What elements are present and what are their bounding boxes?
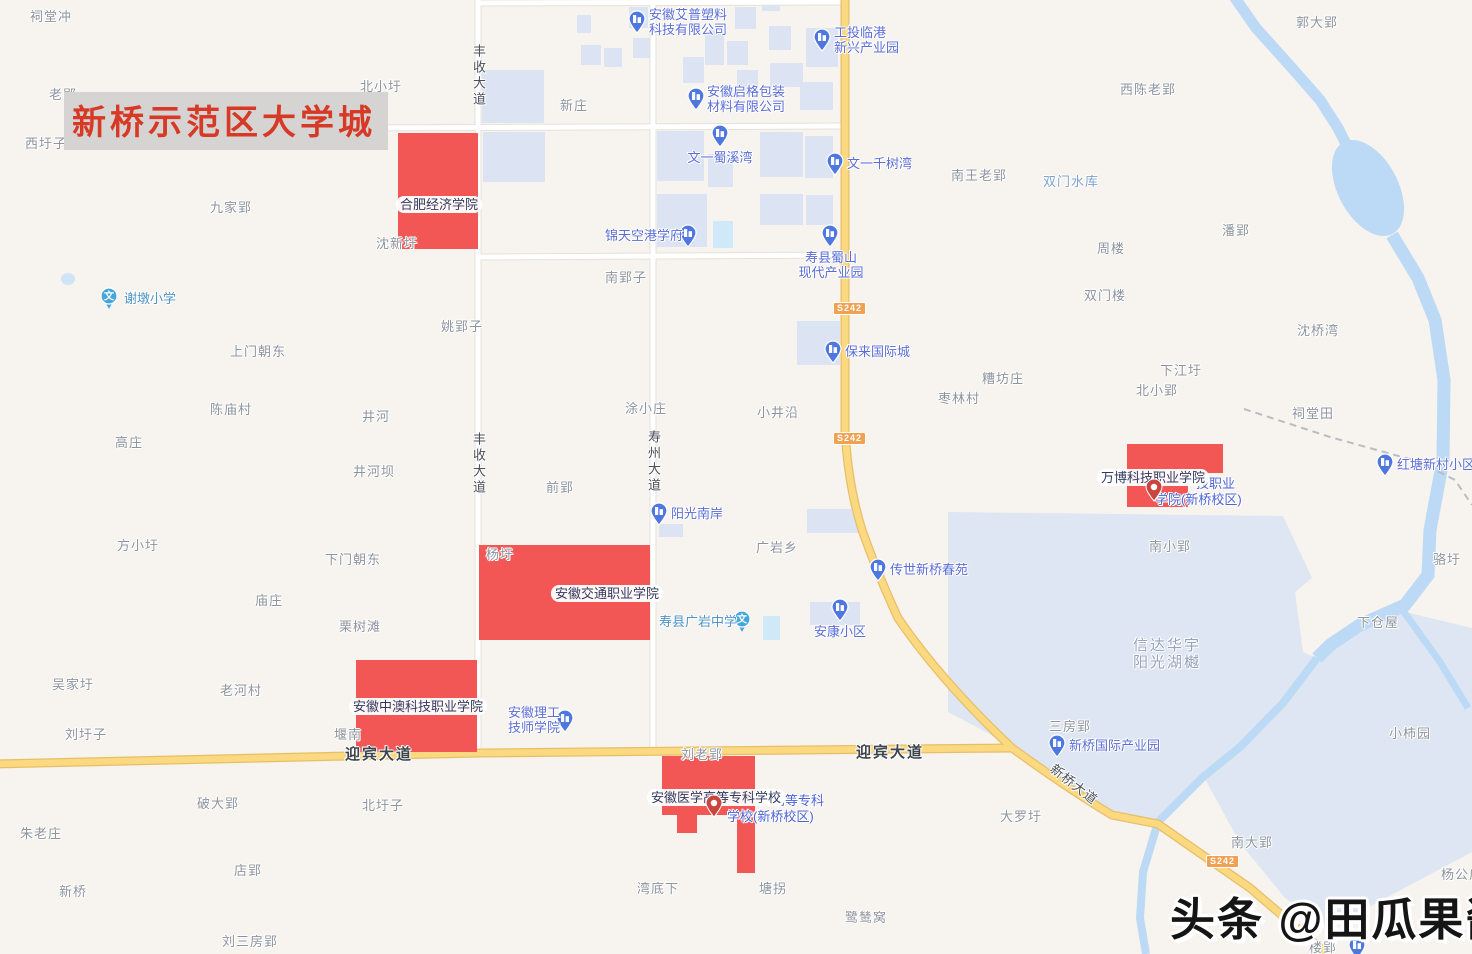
village-label: 新桥: [59, 885, 87, 900]
poi-label[interactable]: 红塘新村小区: [1397, 457, 1472, 472]
village-label: 骆圩: [1433, 553, 1461, 568]
road-label: 寿州大道: [645, 430, 660, 494]
village-label: 堰南: [334, 728, 362, 743]
poi-label[interactable]: 传世新桥春苑: [890, 562, 968, 577]
poi-label[interactable]: 寿县蜀山现代产业园: [798, 250, 863, 280]
village-label: 高庄: [115, 436, 143, 451]
village-label: 西陈老郢: [1120, 83, 1176, 98]
village-label: 井河坝: [353, 465, 395, 480]
village-label: 小柿园: [1389, 727, 1431, 742]
village-label: 庙庄: [255, 594, 283, 609]
road-label: 丰收大道: [470, 44, 485, 108]
village-label: 北小郢: [1136, 384, 1178, 399]
poi-label[interactable]: 文一千树湾: [847, 156, 912, 171]
village-label: 老河村: [220, 684, 262, 699]
village-label: 北圩子: [362, 799, 404, 814]
village-label: 方小圩: [117, 539, 159, 554]
place-pin-icon[interactable]: [1144, 478, 1164, 502]
village-label: 涂小庄: [625, 402, 667, 417]
village-label: 塘拐: [759, 882, 787, 897]
route-badge: S242: [833, 302, 866, 315]
place-pin-icon[interactable]: [704, 794, 724, 818]
village-label: 祠堂田: [1292, 407, 1334, 422]
village-label: 前郢: [546, 481, 574, 496]
poi-label[interactable]: 锦天空港学府: [605, 228, 683, 243]
poi-label[interactable]: 安徽理工技师学院: [508, 705, 560, 735]
village-label: 三房郢: [1049, 720, 1091, 735]
village-label: 吴家圩: [52, 678, 94, 693]
village-label: 下仓屋: [1357, 616, 1399, 631]
village-label: 枣林村: [938, 392, 980, 407]
water-label: 双门水库: [1043, 175, 1099, 190]
village-label: 新庄: [560, 99, 588, 114]
village-label: 栗树滩: [339, 620, 381, 635]
campus-area-label: 安徽中澳科技职业学院: [349, 698, 487, 715]
watermark: 头条 @田瓜果酱: [1170, 883, 1472, 948]
poi-label[interactable]: 工投临港新兴产业园: [834, 25, 899, 55]
road-label: 丰收大道: [470, 432, 485, 496]
building-pin-icon[interactable]: [830, 598, 850, 622]
poi-label[interactable]: 寿县广岩中学: [659, 614, 737, 629]
village-label: 破大郢: [197, 797, 239, 812]
village-label: 上门朝东: [230, 345, 286, 360]
road-label: 迎宾大道: [856, 744, 924, 761]
village-label: 下门朝东: [325, 553, 381, 568]
building-pin-icon[interactable]: [825, 152, 845, 176]
campus-area-label: 合肥经济学院: [396, 196, 482, 213]
route-badge: S242: [1206, 855, 1239, 868]
village-label: 祠堂冲: [30, 10, 72, 25]
village-label: 刘三房郢: [222, 935, 278, 950]
village-label: 姚郢子: [441, 320, 483, 335]
village-label: 下江圩: [1160, 364, 1202, 379]
campus-poi-text: 学校(新桥校区): [727, 810, 814, 825]
road-label: 迎宾大道: [345, 746, 413, 763]
village-label: 沈桥湾: [1297, 324, 1339, 339]
village-label: 杨圩: [486, 548, 514, 563]
village-label: 九家郢: [210, 201, 252, 216]
poi-label[interactable]: 文一蜀溪湾: [687, 150, 752, 165]
village-label: 广岩乡: [756, 541, 798, 556]
village-label: 店郢: [234, 864, 262, 879]
village-label: 南小郢: [1149, 540, 1191, 555]
route-badge: S242: [833, 432, 866, 445]
building-pin-icon[interactable]: [1047, 734, 1067, 758]
village-label: 糟坊庄: [982, 372, 1024, 387]
village-label: 南大郢: [1231, 836, 1273, 851]
village-label: 周楼: [1097, 242, 1125, 257]
map-canvas[interactable]: 文: [0, 0, 1472, 954]
red-area-hefei-jingji: [398, 133, 478, 249]
building-pin-icon[interactable]: [812, 28, 832, 52]
ponds: [713, 221, 780, 640]
building-pin-icon[interactable]: [686, 87, 706, 111]
poi-label[interactable]: 安康小区: [814, 624, 866, 639]
campus-area-label: 安徽交通职业学院: [551, 585, 663, 602]
village-label: 刘圩子: [65, 728, 107, 743]
village-label: 双门楼: [1084, 289, 1126, 304]
village-label: 陈庙村: [210, 403, 252, 418]
school-pin-icon[interactable]: [99, 287, 119, 311]
poi-label[interactable]: 保来国际城: [845, 344, 910, 359]
village-label: 湾底下: [637, 882, 679, 897]
poi-label[interactable]: 新桥国际产业园: [1069, 738, 1160, 753]
village-label: 杨公庙: [1441, 868, 1472, 883]
village-label: 南王老郢: [951, 169, 1007, 184]
page-title: 新桥示范区大学城: [64, 92, 388, 150]
building-pin-icon[interactable]: [649, 502, 669, 526]
building-pin-icon[interactable]: [627, 10, 647, 34]
poi-label[interactable]: 阳光南岸: [671, 506, 723, 521]
poi-label[interactable]: 安徽艾普塑料科技有限公司: [649, 7, 727, 37]
village-label: 小井沿: [757, 406, 799, 421]
village-label: 朱老庄: [20, 827, 62, 842]
building-pin-icon[interactable]: [1375, 453, 1395, 477]
village-label: 沈新圩: [376, 237, 418, 252]
poi-label[interactable]: 谢墩小学: [124, 291, 176, 306]
building-pin-icon[interactable]: [820, 224, 840, 248]
poi-label[interactable]: 安徽启格包装材料有限公司: [707, 84, 785, 114]
village-label: 西圩子: [25, 137, 67, 152]
village-label: 刘老郢: [681, 748, 723, 763]
campus-poi-text: 学院(新桥校区): [1155, 493, 1242, 508]
village-label: 潘郢: [1222, 224, 1250, 239]
village-label: 井河: [362, 410, 390, 425]
residential-area-label: 信达华宇阳光湖樾: [1133, 637, 1201, 672]
building-pin-icon[interactable]: [868, 558, 888, 582]
building-blocks: [482, 0, 860, 625]
village-label: 南郢子: [605, 271, 647, 286]
village-label: 鹭鸶窝: [845, 911, 887, 926]
building-pin-icon[interactable]: [823, 340, 843, 364]
village-label: 郭大郢: [1296, 16, 1338, 31]
village-label: 大罗圩: [1000, 810, 1042, 825]
building-pin-icon[interactable]: [710, 124, 730, 148]
